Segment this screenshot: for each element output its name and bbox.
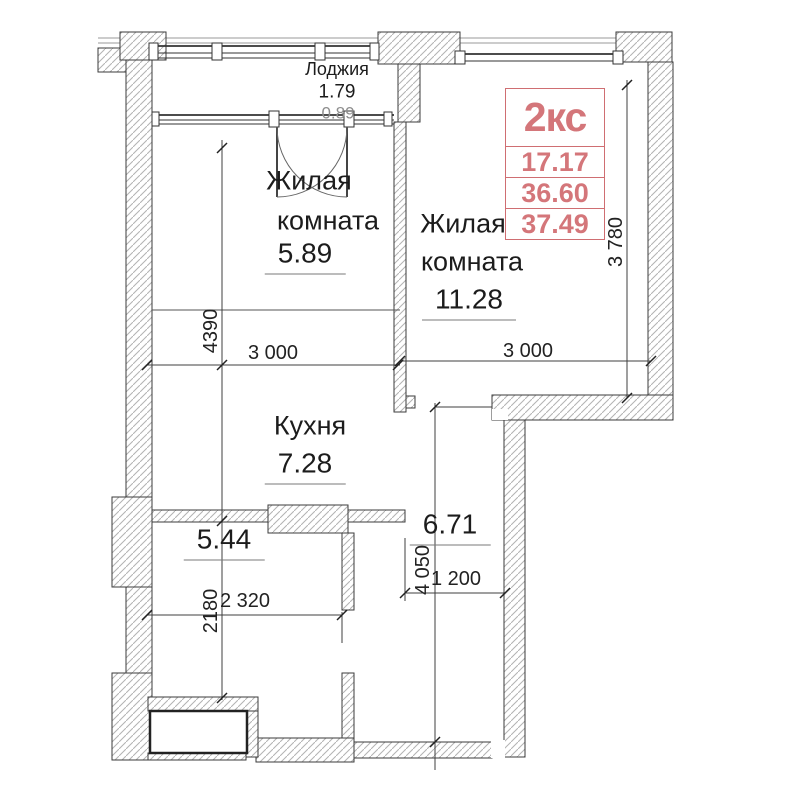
wall-segment	[648, 62, 673, 398]
wall-segment	[256, 738, 354, 762]
dimension-1200: 1 200	[431, 569, 481, 589]
wall-segment	[112, 497, 152, 587]
loggia-window	[149, 43, 379, 60]
dimension-3000-left: 3 000	[248, 343, 298, 363]
wall-segment	[394, 122, 406, 412]
wall-segment	[406, 396, 415, 408]
wall-segment	[378, 32, 460, 64]
wall-segment	[398, 64, 420, 122]
wall-segment	[126, 60, 152, 760]
dimension-2180: 2180	[201, 589, 221, 634]
wall-segment	[354, 742, 492, 758]
dimension-2320: 2 320	[220, 591, 270, 611]
wall-segment	[348, 510, 405, 522]
living-room-1-label-line2: комната	[277, 208, 379, 235]
living-room-2-label-line2: комната	[421, 249, 523, 276]
kitchen-label: Кухня	[274, 413, 346, 440]
floor-plan-drawing	[0, 0, 800, 800]
loggia-label: Лоджия	[305, 60, 369, 78]
dimension-3780: 3 780	[606, 217, 626, 267]
living-room-1-label-line1: Жилая	[266, 168, 351, 195]
wall-segment	[492, 395, 673, 420]
stamp-area-row: 36.60	[505, 177, 605, 209]
wall-segment	[616, 32, 672, 62]
shaft	[150, 711, 247, 753]
dimension-3000-right: 3 000	[503, 341, 553, 361]
hallway-area: 5.44	[184, 526, 265, 561]
wall-segment	[504, 420, 525, 757]
apartment-type-badge: 2кс	[505, 88, 605, 147]
wall-segment	[268, 505, 348, 533]
loggia-area: 1.79	[319, 83, 356, 102]
wall-segment	[342, 533, 354, 610]
apartment-stamp: 2кс 17.17 36.60 37.49	[505, 88, 605, 240]
living-room-2-area: 11.28	[422, 286, 516, 321]
corridor-area: 6.71	[410, 511, 491, 546]
dimension-4390: 4390	[201, 309, 221, 354]
wall-segment	[152, 510, 268, 522]
floor-plan: Лоджия 1.79 0.89 Жилая комната 5.89 Жила…	[0, 0, 800, 800]
wall-segment	[342, 673, 354, 738]
stamp-area-row: 17.17	[505, 146, 605, 178]
wall-segment	[112, 673, 152, 760]
kitchen-area: 7.28	[265, 450, 346, 485]
stamp-area-row: 37.49	[505, 208, 605, 240]
room-window	[455, 51, 623, 64]
living-room-2-label-line1: Жилая	[420, 211, 505, 238]
slab-edge-lines	[98, 38, 648, 43]
loggia-secondary-area: 0.89	[321, 105, 354, 122]
loggia-sill	[152, 111, 394, 127]
living-room-1-area: 5.89	[265, 240, 346, 275]
wall-segment	[148, 697, 258, 711]
